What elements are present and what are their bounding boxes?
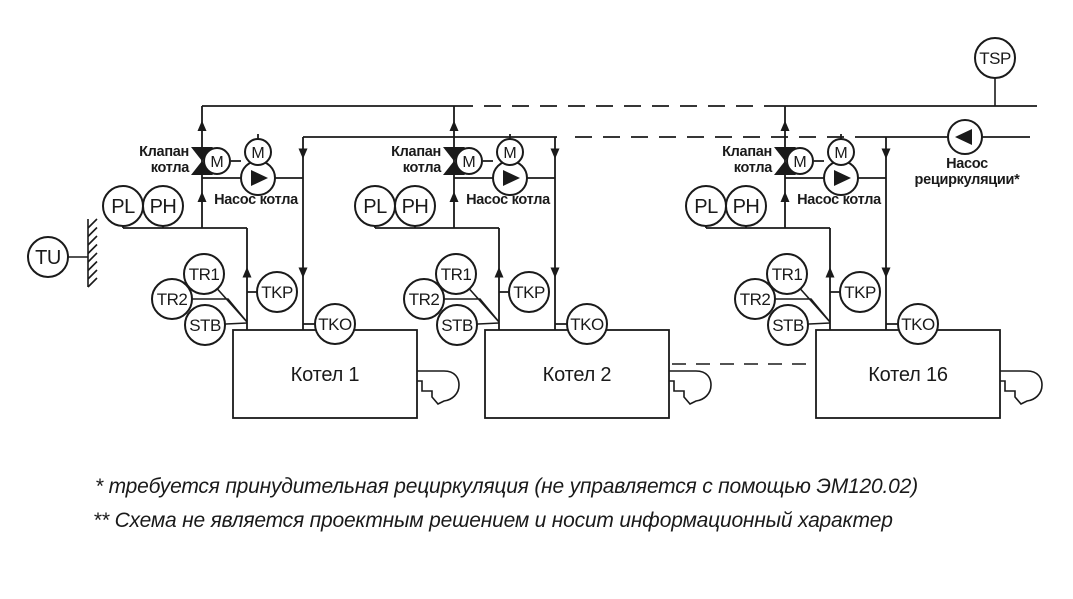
svg-text:TKO: TKO — [570, 315, 604, 334]
boiler-2-label: Котел 2 — [543, 364, 612, 386]
recirculation-pump-icon — [948, 120, 982, 154]
valve-motor-icon: M — [787, 148, 813, 174]
valve-label-line2: котла — [151, 160, 190, 176]
valve-label-line1: Клапан — [722, 144, 772, 160]
svg-text:TKP: TKP — [513, 283, 545, 302]
boiler-cascade-schematic: M M PL PH TR1 TR2 STB — [0, 0, 1073, 599]
svg-text:M: M — [251, 145, 264, 162]
svg-text:STB: STB — [772, 316, 804, 335]
sensor-tr1: TR1 — [184, 254, 224, 294]
boiler-pump-icon — [824, 161, 858, 195]
sensor-tkp: TKP — [509, 272, 549, 312]
valve-label-line2: котла — [734, 160, 773, 176]
boiler-16-label: Котел 16 — [868, 364, 948, 386]
svg-text:M: M — [462, 154, 475, 171]
burner-icon — [417, 371, 459, 404]
valve-label-line2: котла — [403, 160, 442, 176]
svg-text:M: M — [210, 154, 223, 171]
svg-text:TR1: TR1 — [772, 265, 803, 284]
burner-icon — [1000, 371, 1042, 404]
sensor-pl: PL — [686, 186, 726, 226]
valve-label-line1: Клапан — [391, 144, 441, 160]
sensor-tkp: TKP — [840, 272, 880, 312]
sensor-tko: TKO — [567, 304, 607, 344]
svg-text:PH: PH — [150, 196, 177, 218]
svg-text:TR1: TR1 — [189, 265, 220, 284]
boiler-pump-icon — [493, 161, 527, 195]
svg-text:PH: PH — [402, 196, 429, 218]
svg-text:TKP: TKP — [844, 283, 876, 302]
boiler-group-3: M M PL PH TR1 TR2 STB — [686, 106, 1042, 418]
boiler-1-label: Котел 1 — [291, 364, 360, 386]
svg-text:TR1: TR1 — [441, 265, 472, 284]
svg-text:PH: PH — [733, 196, 760, 218]
sensor-pl: PL — [103, 186, 143, 226]
sensor-tr2: TR2 — [735, 279, 775, 319]
svg-text:TKO: TKO — [318, 315, 352, 334]
pump-motor-icon: M — [245, 139, 271, 165]
svg-text:STB: STB — [441, 316, 473, 335]
sensor-tr2: TR2 — [152, 279, 192, 319]
valve-motor-icon: M — [204, 148, 230, 174]
sensor-tr2: TR2 — [404, 279, 444, 319]
sensor-tr1: TR1 — [767, 254, 807, 294]
burner-icon — [669, 371, 711, 404]
pump-motor-icon: M — [828, 139, 854, 165]
footnote-1: * требуется принудительная рециркуляция … — [95, 475, 918, 498]
recirc-pump-label-line2: рециркуляции* — [915, 172, 1021, 188]
sensor-ph: PH — [395, 186, 435, 226]
valve-motor-icon: M — [456, 148, 482, 174]
sensor-tko: TKO — [898, 304, 938, 344]
supply-sensor-tsp: TSP — [975, 38, 1015, 106]
svg-text:TSP: TSP — [979, 49, 1011, 68]
pump-label: Насос котла — [466, 192, 551, 208]
sensor-tko: TKO — [315, 304, 355, 344]
svg-text:M: M — [834, 145, 847, 162]
footnote-2: ** Схема не является проектным решением … — [93, 509, 893, 532]
svg-text:M: M — [503, 145, 516, 162]
sensor-ph: PH — [726, 186, 766, 226]
sensor-tkp: TKP — [257, 272, 297, 312]
sensor-tr1: TR1 — [436, 254, 476, 294]
sensor-pl: PL — [355, 186, 395, 226]
outdoor-sensor-tu: TU — [28, 219, 97, 287]
sensor-stb: STB — [437, 305, 477, 345]
svg-text:TR2: TR2 — [409, 290, 440, 309]
wall-hatching — [88, 219, 97, 287]
svg-text:PL: PL — [694, 196, 718, 218]
svg-text:TR2: TR2 — [157, 290, 188, 309]
svg-text:TKP: TKP — [261, 283, 293, 302]
svg-text:M: M — [793, 154, 806, 171]
boiler-pump-icon — [241, 161, 275, 195]
svg-text:TKO: TKO — [901, 315, 935, 334]
recirc-pump-label-line1: Насос — [946, 156, 988, 172]
sensor-ph: PH — [143, 186, 183, 226]
svg-text:TU: TU — [35, 247, 61, 269]
svg-text:TR2: TR2 — [740, 290, 771, 309]
svg-text:PL: PL — [363, 196, 387, 218]
sensor-stb: STB — [768, 305, 808, 345]
pump-motor-icon: M — [497, 139, 523, 165]
pump-label: Насос котла — [214, 192, 299, 208]
valve-label-line1: Клапан — [139, 144, 189, 160]
svg-text:STB: STB — [189, 316, 221, 335]
pump-label: Насос котла — [797, 192, 882, 208]
sensor-stb: STB — [185, 305, 225, 345]
svg-text:PL: PL — [111, 196, 135, 218]
